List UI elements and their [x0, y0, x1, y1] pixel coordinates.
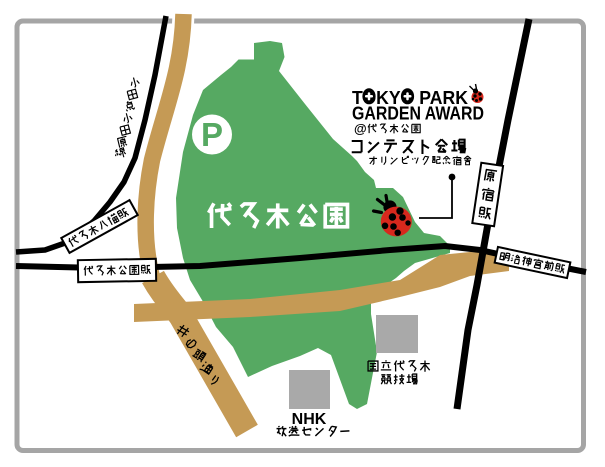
- svg-text:NHK: NHK: [292, 411, 327, 428]
- svg-text:@: @: [354, 121, 367, 136]
- svg-text:GARDEN AWARD: GARDEN AWARD: [352, 103, 484, 124]
- svg-text:P: P: [201, 116, 223, 153]
